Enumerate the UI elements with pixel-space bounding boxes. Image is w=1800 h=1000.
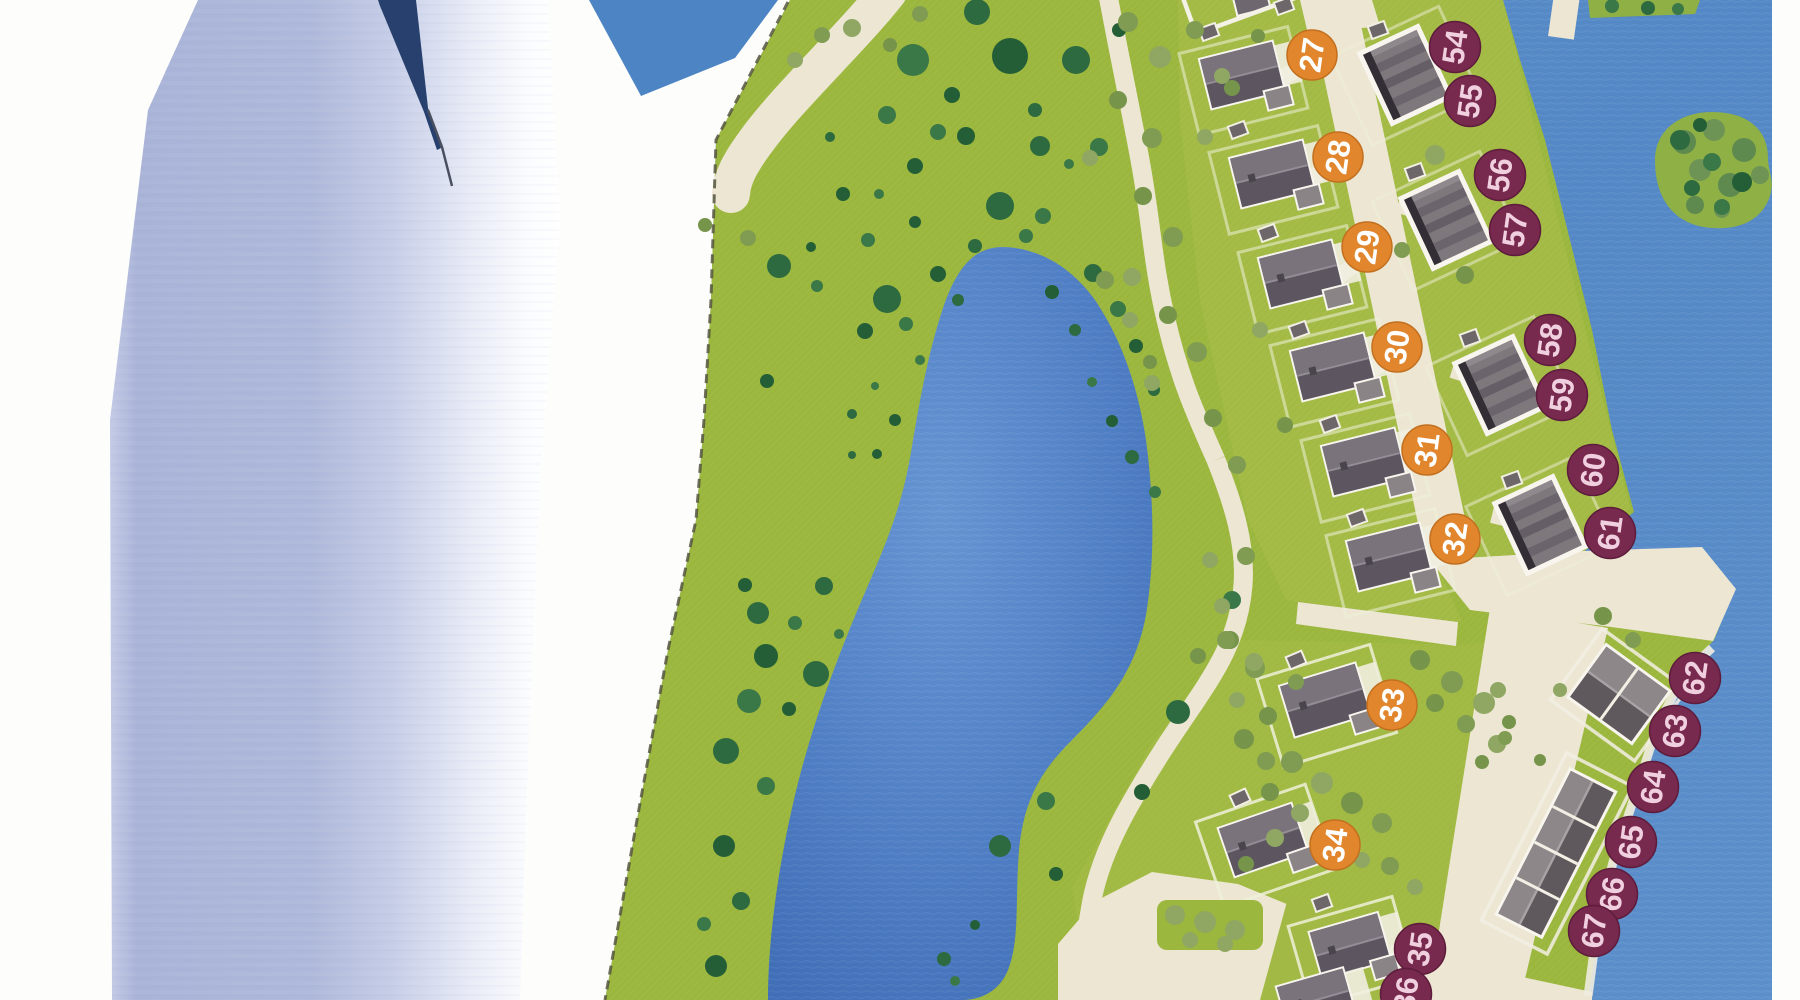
svg-text:60: 60 xyxy=(1573,450,1612,489)
svg-text:57: 57 xyxy=(1495,210,1534,249)
svg-text:61: 61 xyxy=(1590,513,1629,552)
svg-text:56: 56 xyxy=(1480,155,1519,194)
svg-text:67: 67 xyxy=(1574,911,1613,950)
svg-text:62: 62 xyxy=(1675,658,1714,697)
svg-text:33: 33 xyxy=(1372,685,1411,724)
svg-text:63: 63 xyxy=(1655,711,1694,750)
svg-text:54: 54 xyxy=(1435,27,1475,67)
svg-text:35: 35 xyxy=(1400,929,1439,968)
svg-text:64: 64 xyxy=(1633,767,1673,807)
svg-text:58: 58 xyxy=(1530,320,1569,359)
svg-text:34: 34 xyxy=(1315,825,1355,865)
svg-text:30: 30 xyxy=(1377,327,1416,366)
svg-text:28: 28 xyxy=(1318,137,1357,176)
svg-text:55: 55 xyxy=(1450,81,1489,120)
svg-text:32: 32 xyxy=(1435,519,1474,558)
svg-text:65: 65 xyxy=(1611,822,1650,861)
svg-text:59: 59 xyxy=(1542,375,1581,414)
svg-text:27: 27 xyxy=(1292,35,1331,74)
svg-text:31: 31 xyxy=(1407,430,1446,469)
svg-text:29: 29 xyxy=(1347,227,1386,266)
